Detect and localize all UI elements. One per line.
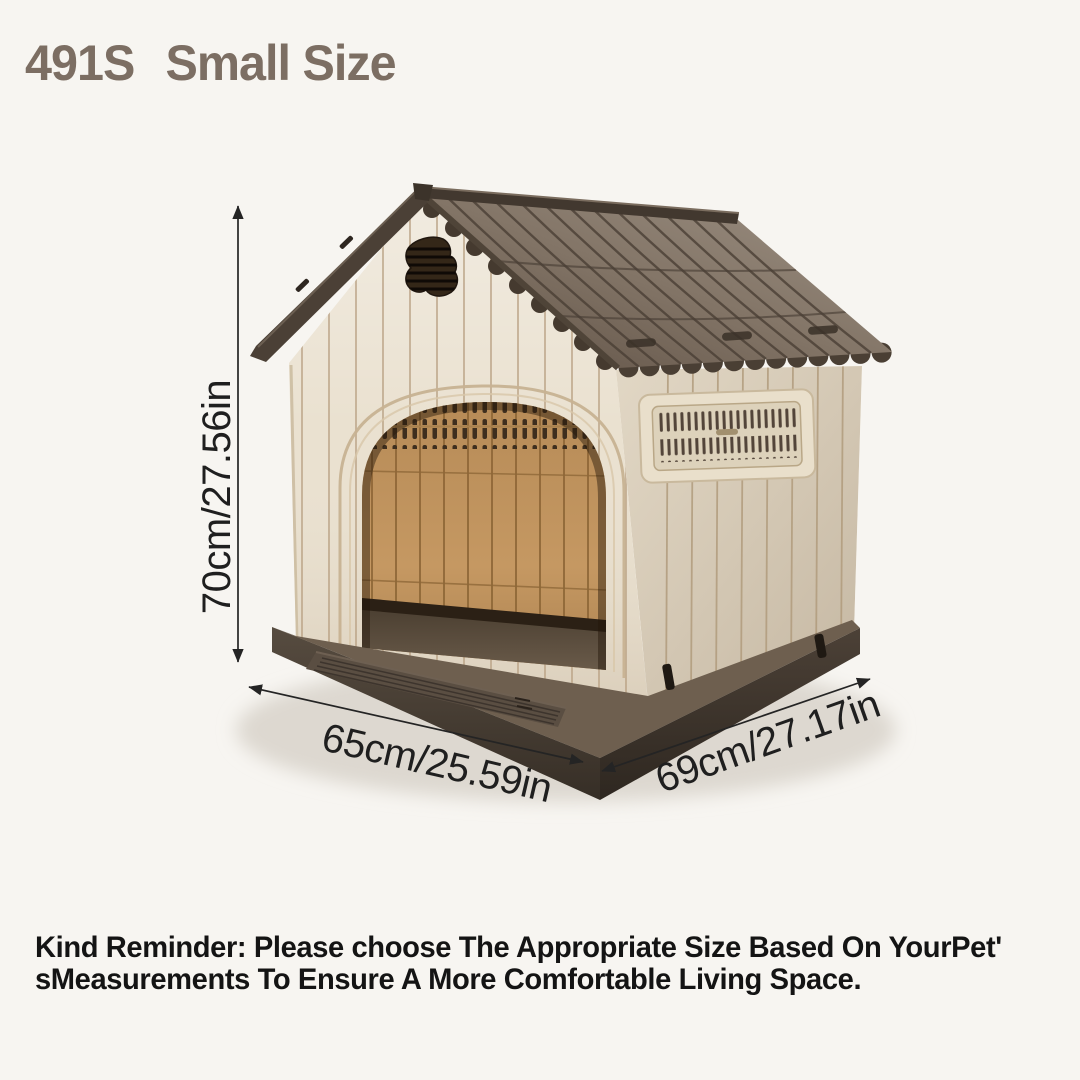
kind-reminder: Kind Reminder: Please choose The Appropr… (35, 932, 1002, 995)
product-size-infographic: 491S Small Size (0, 0, 1080, 1080)
reminder-line-1: Kind Reminder: Please choose The Appropr… (35, 932, 1002, 964)
side-vent (639, 389, 816, 483)
reminder-line-2: sMeasurements To Ensure A More Comfortab… (35, 964, 1002, 996)
height-dimension-label: 70cm/27.56in (195, 380, 239, 614)
door-opening (355, 395, 615, 680)
dog-house-illustration: 70cm/27.56in 65cm/25.59in 69cm/27.17in (0, 0, 1080, 1080)
